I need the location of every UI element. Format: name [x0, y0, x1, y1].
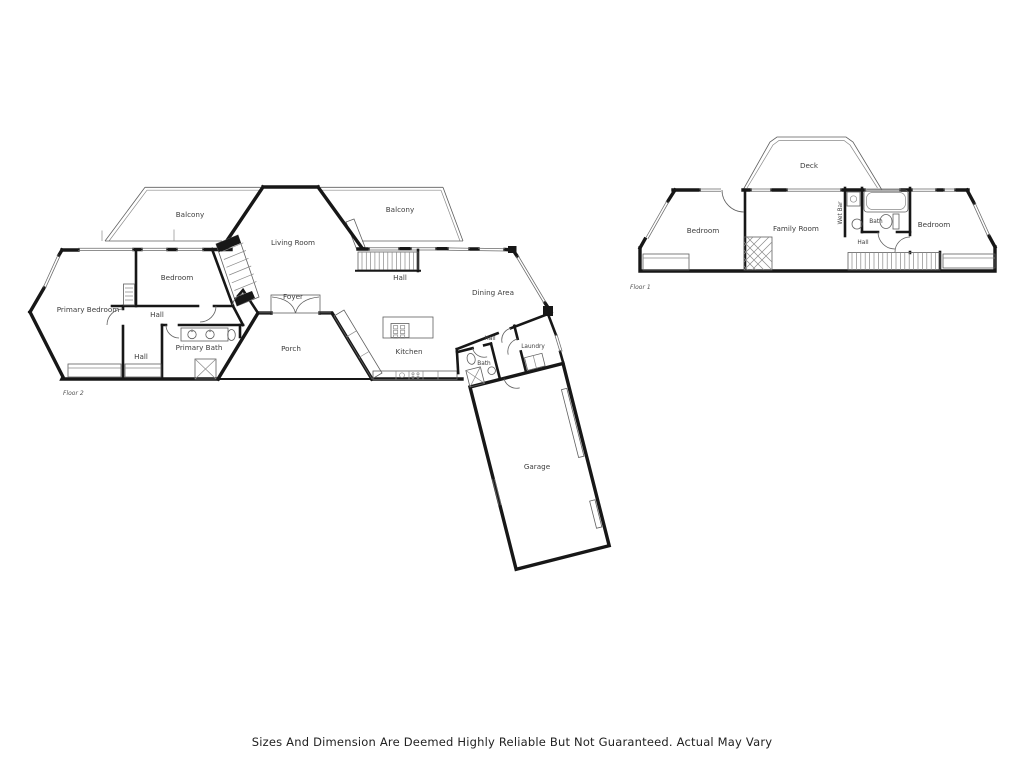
floor2-primary-bath-label: Primary Bath — [176, 343, 223, 352]
floor2-stairs-upper — [356, 252, 420, 271]
floor1-staircase — [848, 253, 940, 271]
floor2-hall-bath-label: Hall — [484, 336, 496, 342]
floor1-floor-label: Floor 1 — [630, 284, 651, 291]
floor2-porch-label: Porch — [281, 344, 301, 353]
floor2-closets — [68, 284, 161, 377]
floor2-bath-label: Bath — [477, 361, 491, 367]
floor2-living-room-label: Living Room — [271, 238, 315, 247]
floor2-balcony-right-label: Balcony — [386, 205, 415, 214]
floor2-hall-mid-label: Hall — [393, 273, 407, 282]
floor2-floor-label: Floor 2 — [63, 390, 84, 397]
floor2-hall-lower-label: Hall — [134, 352, 148, 361]
disclaimer-text: Sizes And Dimension Are Deemed Highly Re… — [0, 735, 1024, 749]
floor2-garage-label: Garage — [524, 462, 551, 471]
floor2-primary-bath-fixtures — [181, 328, 235, 379]
floor1-wet-bar-label: Wet Bar — [838, 201, 844, 225]
floorplan-page: Balcony Balcony Living Room Bedroom Prim… — [0, 0, 1024, 768]
floor1-hall-label: Hall — [857, 240, 869, 246]
floor2-garage-wing — [450, 313, 612, 571]
floor2-dining-area-label: Dining Area — [472, 288, 514, 297]
floor2-kitchen-label: Kitchen — [395, 347, 422, 356]
floor1-bedroom-left-label: Bedroom — [687, 226, 720, 235]
floor1-family-room-label: Family Room — [773, 224, 819, 233]
floor2-laundry-label: Laundry — [521, 344, 545, 350]
floor1-bedroom-right-label: Bedroom — [918, 220, 951, 229]
floor2-plan: Balcony Balcony Living Room Bedroom Prim… — [30, 187, 611, 571]
floor2-bedroom-label: Bedroom — [161, 273, 194, 282]
floor1-chimney-hatch — [715, 237, 785, 270]
floor2-foyer-label: Foyer — [283, 292, 303, 301]
floor2-primary-bedroom-label: Primary Bedroom — [57, 305, 120, 314]
floor1-plan: Deck Bedroom Family Room Wet Bar Bath Ha… — [630, 137, 995, 291]
floor2-labels: Balcony Balcony Living Room Bedroom Prim… — [57, 205, 551, 471]
floorplan-drawing: Balcony Balcony Living Room Bedroom Prim… — [0, 0, 1024, 768]
floor2-balcony-left-label: Balcony — [176, 210, 205, 219]
floor1-bath-label: Bath — [869, 219, 883, 225]
floor2-hall-upper-label: Hall — [150, 310, 164, 319]
floor1-deck-label: Deck — [800, 161, 819, 170]
